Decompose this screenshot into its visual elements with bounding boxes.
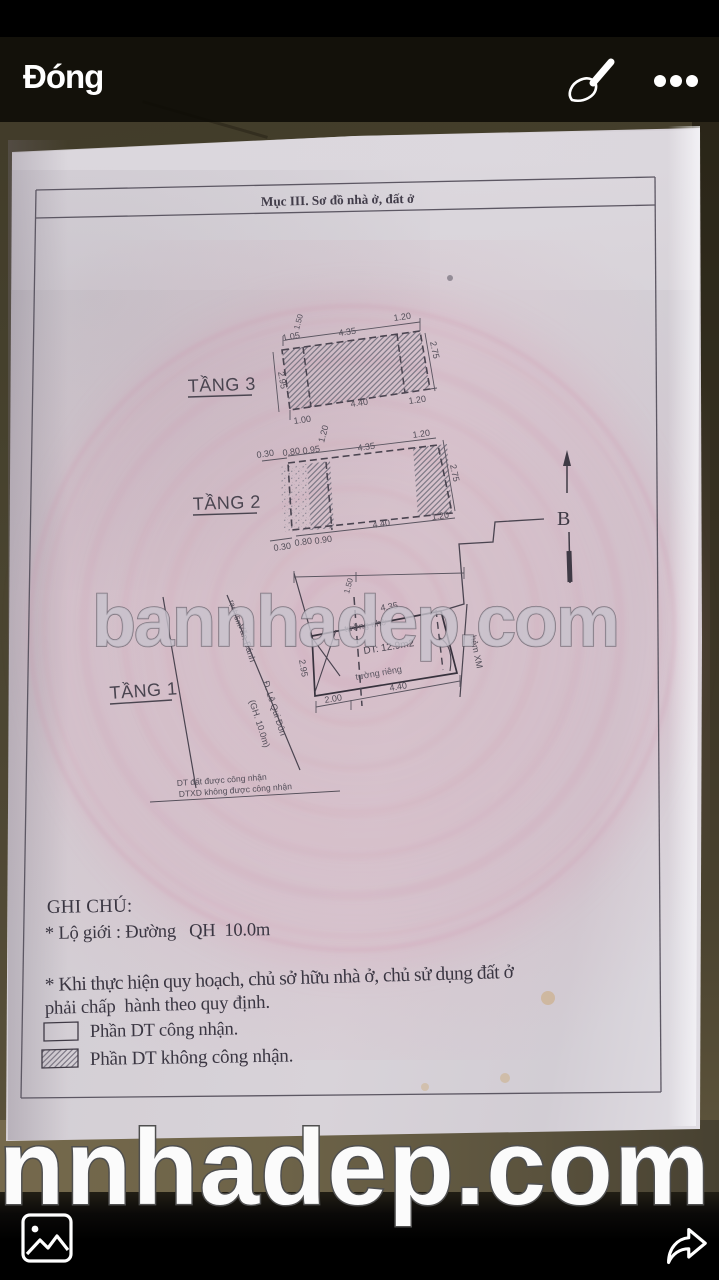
svg-text:B: B	[557, 508, 570, 530]
svg-text:4.40: 4.40	[372, 518, 391, 530]
svg-text:1.05: 1.05	[282, 330, 301, 343]
svg-text:1.20: 1.20	[393, 311, 412, 323]
svg-text:0.95: 0.95	[302, 444, 321, 456]
svg-text:0.90: 0.90	[314, 534, 333, 546]
svg-text:2.95: 2.95	[276, 371, 289, 390]
svg-text:4.40: 4.40	[350, 397, 369, 409]
svg-text:4.35: 4.35	[357, 441, 376, 453]
svg-text:Mục III. Sơ đồ nhà ở, đất ở: Mục III. Sơ đồ nhà ở, đất ở	[261, 191, 415, 209]
svg-text:1.00: 1.00	[293, 414, 312, 426]
svg-text:Phần DT không công nhận.: Phần DT không công nhận.	[90, 1045, 294, 1070]
svg-text:* Lộ giới : Đường QH 10.0m: * Lộ giới : Đường QH 10.0m	[45, 920, 271, 944]
svg-text:0.30: 0.30	[273, 541, 292, 553]
svg-text:0.80: 0.80	[282, 446, 301, 458]
svg-text:1.20: 1.20	[408, 394, 427, 406]
svg-text:TẦNG 3: TẦNG 3	[187, 373, 256, 396]
svg-text:1.20: 1.20	[412, 428, 431, 440]
svg-text:4.35: 4.35	[338, 326, 357, 338]
svg-text:2.75: 2.75	[428, 340, 441, 359]
svg-text:GHI CHÚ:: GHI CHÚ:	[47, 895, 133, 918]
svg-text:TẦNG 2: TẦNG 2	[192, 491, 261, 514]
svg-text:TẦNG 1: TẦNG 1	[109, 677, 178, 703]
svg-text:phải chấp hành theo quy định.: phải chấp hành theo quy định.	[45, 992, 271, 1019]
svg-text:1.50: 1.50	[292, 313, 305, 331]
svg-text:* Khi thực hiện quy hoạch, chủ: * Khi thực hiện quy hoạch, chủ sở hữu nh…	[45, 962, 515, 996]
svg-text:Phần DT công nhận.: Phần DT công nhận.	[90, 1019, 238, 1042]
